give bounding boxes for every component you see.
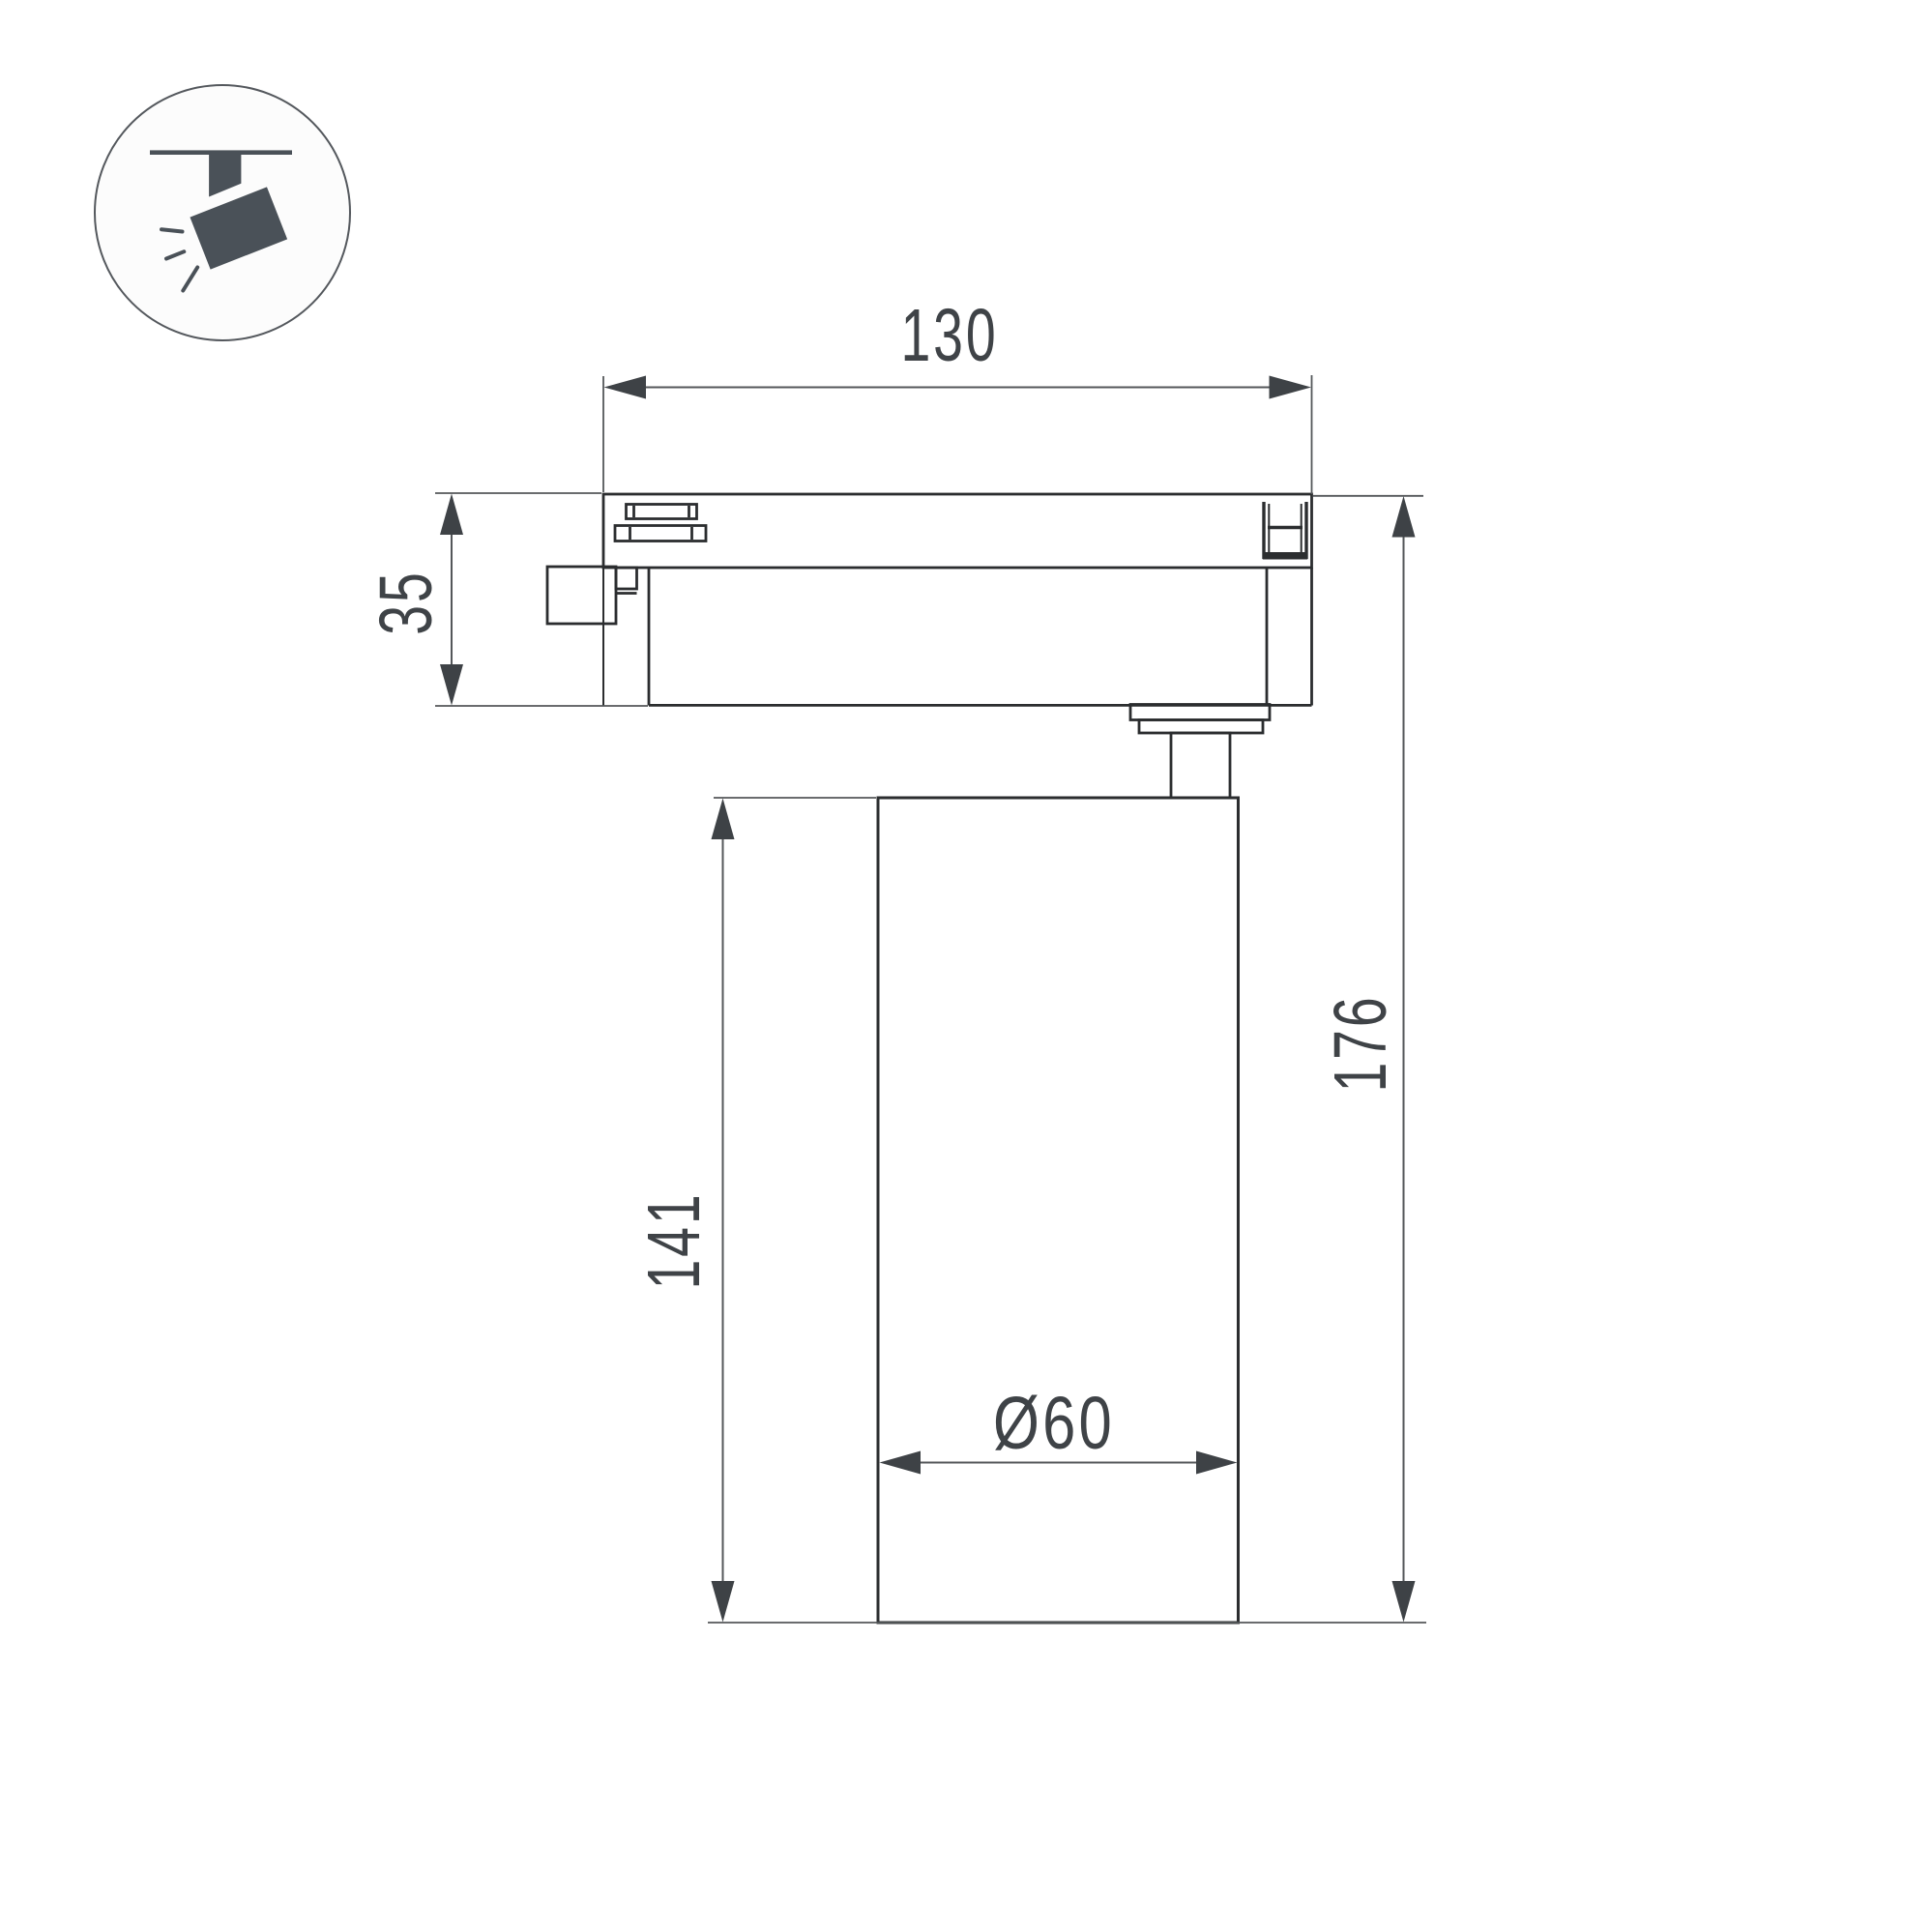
svg-text:35: 35	[365, 570, 448, 634]
svg-text:130: 130	[900, 294, 998, 377]
svg-text:141: 141	[632, 1191, 716, 1289]
svg-text:176: 176	[1319, 994, 1402, 1092]
svg-text:Ø60: Ø60	[993, 1381, 1115, 1464]
